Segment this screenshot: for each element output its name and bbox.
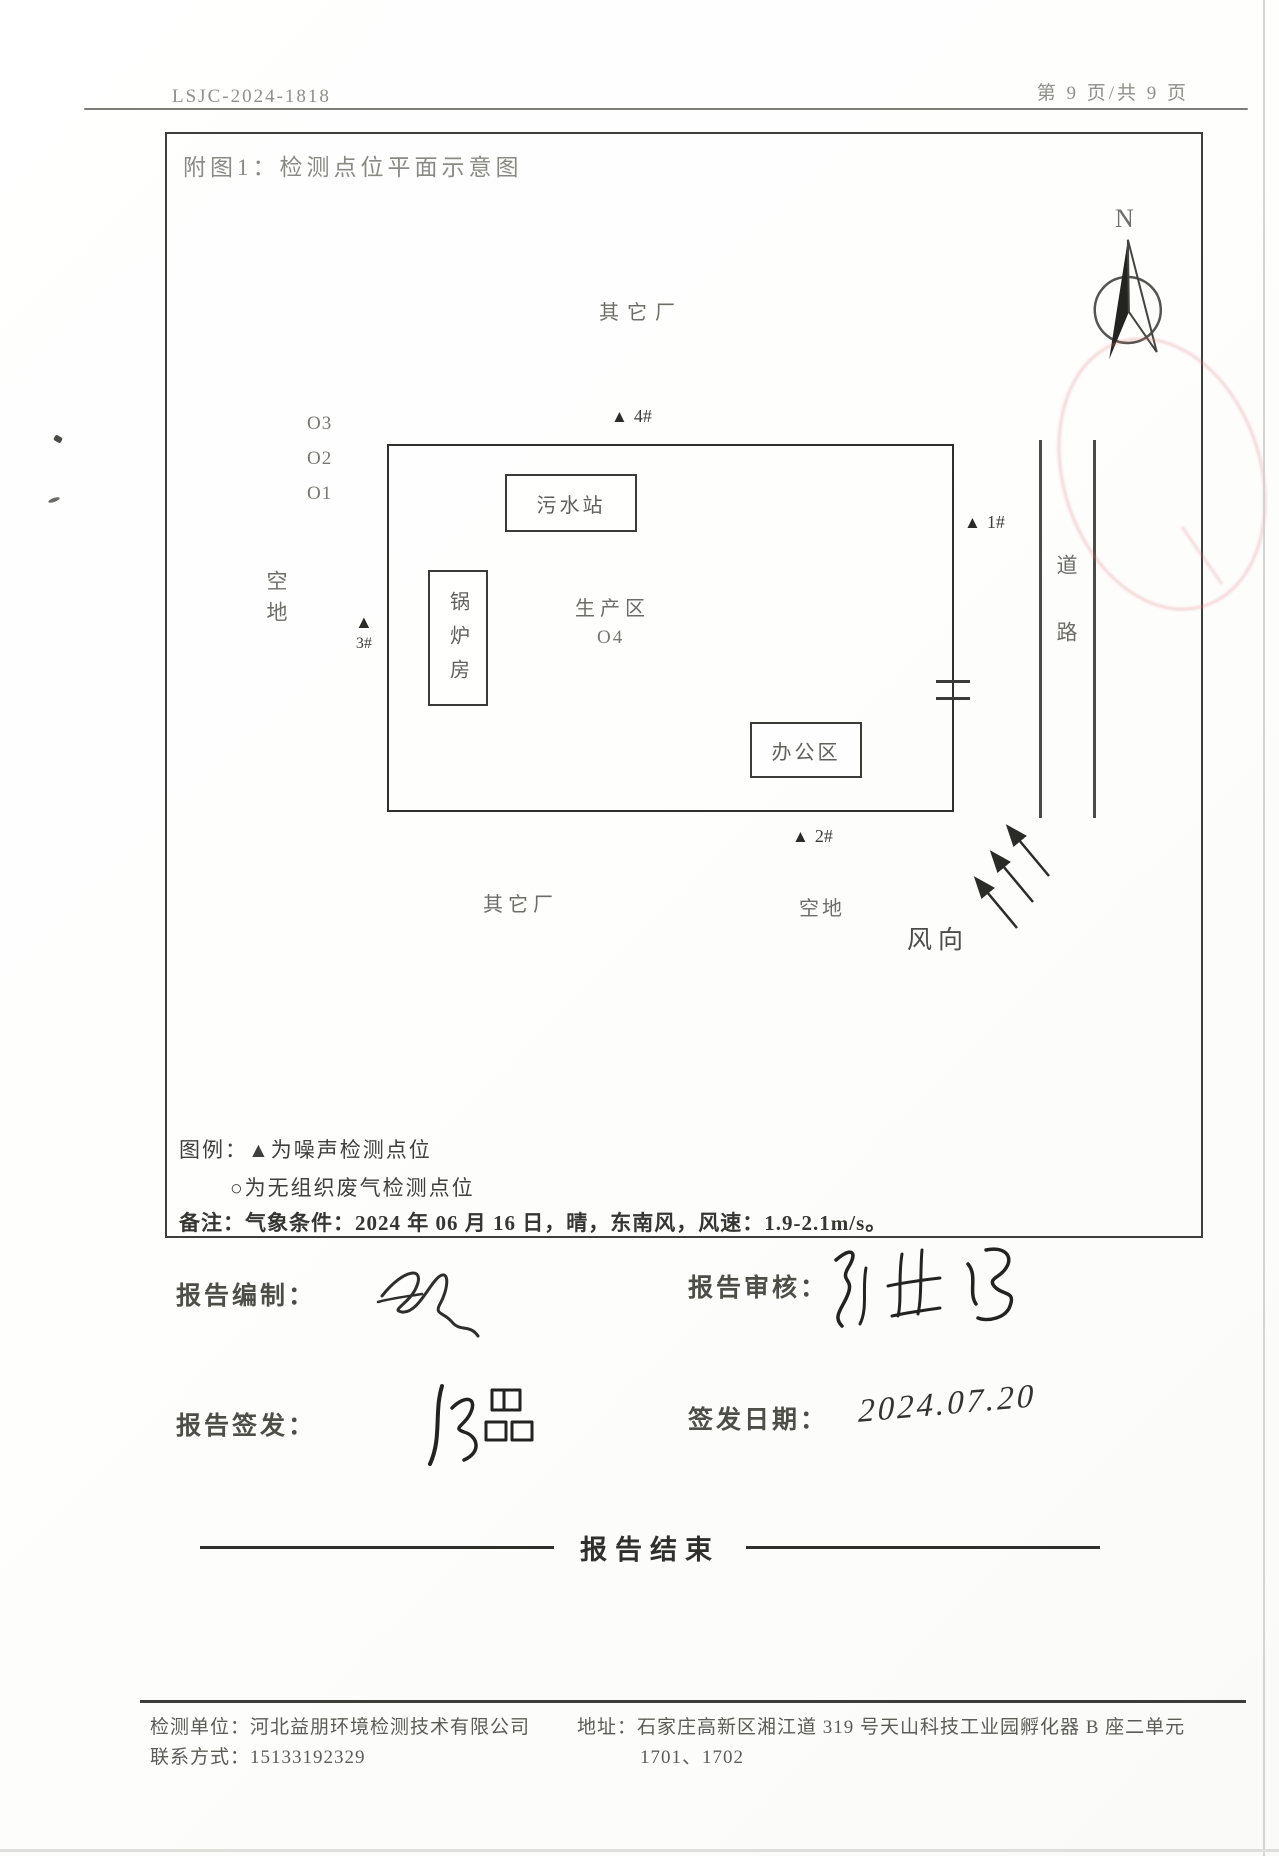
gas-point-list: O3 O2 O1 <box>307 406 332 511</box>
legend-noise-item: ▲为噪声检测点位 <box>248 1138 432 1162</box>
signature-prepared <box>352 1252 492 1352</box>
page-number: 第 9 页/共 9 页 <box>1037 78 1189 105</box>
footer-address-line2: 1701、1702 <box>640 1742 744 1769</box>
noise-point-3: ▲ 3# <box>355 612 373 653</box>
footer-address-line1: 地址：石家庄高新区湘江道 319 号天山科技工业园孵化器 B 座二单元 <box>577 1712 1185 1739</box>
noise-point-3-label: 3# <box>355 635 373 653</box>
office-area-box: 办公区 <box>750 722 862 778</box>
report-page: LSJC-2024-1818 第 9 页/共 9 页 附图1：检测点位平面示意图… <box>0 0 1279 1856</box>
legend-label: 图例： <box>179 1138 248 1162</box>
note-text: 气象条件：2024 年 06 月 16 日，晴，东南风，风速：1.9-2.1m/… <box>245 1211 887 1235</box>
scan-edge-bottom <box>0 1849 1279 1852</box>
compass-north-label: N <box>1115 204 1134 234</box>
gas-point-o2: O2 <box>307 441 332 476</box>
scan-speck <box>48 496 61 504</box>
figure-title: 附图1：检测点位平面示意图 <box>183 148 523 182</box>
legend-row-noise: 图例：▲为噪声检测点位 <box>179 1134 432 1164</box>
zone-other-factory-top: 其它厂 <box>599 296 683 325</box>
report-prepared-label: 报告编制： <box>176 1276 316 1312</box>
document-number: LSJC-2024-1818 <box>172 86 331 108</box>
noise-point-2: ▲2# <box>792 826 833 847</box>
scan-speck <box>53 434 63 443</box>
note-row: 备注：气象条件：2024 年 06 月 16 日，晴，东南风，风速：1.9-2.… <box>179 1207 887 1237</box>
office-area-label: 办公区 <box>772 736 841 765</box>
gas-point-o3: O3 <box>307 406 332 441</box>
boiler-room-box: 锅炉房 <box>428 570 488 706</box>
footer-contact: 联系方式：15133192329 <box>150 1742 366 1769</box>
gas-point-o4: O4 <box>597 627 624 649</box>
scan-edge-right <box>1263 0 1265 1856</box>
signature-reviewed <box>818 1238 1028 1338</box>
sewage-station-label: 污水站 <box>537 489 606 518</box>
zone-empty-lot-bottom: 空地 <box>799 892 845 921</box>
noise-marker-icon: ▲ <box>792 827 809 846</box>
noise-point-4: ▲4# <box>611 406 652 427</box>
zone-empty-lot-left: 空地 <box>261 570 291 632</box>
header-divider <box>84 108 1248 110</box>
gate-line-bottom <box>936 697 970 700</box>
note-label: 备注： <box>179 1211 245 1235</box>
noise-marker-icon: ▲ <box>355 612 373 633</box>
boiler-room-label: 锅炉房 <box>444 591 473 693</box>
issue-date-value: 2024.07.20 <box>858 1378 1036 1431</box>
report-issued-label: 报告签发： <box>176 1406 316 1442</box>
sewage-station-box: 污水站 <box>505 474 637 532</box>
legend-gas-item: ○为无组织废气检测点位 <box>230 1176 475 1200</box>
noise-point-4-label: 4# <box>634 406 652 426</box>
noise-marker-icon: ▲ <box>611 407 628 426</box>
issue-date-label: 签发日期： <box>688 1400 828 1436</box>
wind-direction-label: 风向 <box>907 920 969 956</box>
noise-point-1-label: 1# <box>987 512 1005 532</box>
road-line-west <box>1039 440 1042 818</box>
noise-point-2-label: 2# <box>815 826 833 846</box>
end-line-left <box>200 1546 554 1549</box>
report-end-text: 报告结束 <box>554 1528 746 1567</box>
gas-point-o1: O1 <box>307 476 332 511</box>
footer-org: 检测单位：河北益朋环境检测技术有限公司 <box>150 1712 530 1739</box>
end-line-right <box>746 1546 1100 1549</box>
legend-row-gas: ○为无组织废气检测点位 <box>230 1172 475 1202</box>
footer-divider <box>140 1700 1246 1703</box>
report-reviewed-label: 报告审核： <box>688 1268 828 1304</box>
noise-marker-icon: ▲ <box>964 513 981 532</box>
signature-issued <box>408 1368 548 1473</box>
gate-line-top <box>936 680 970 683</box>
report-end-divider: 报告结束 <box>200 1528 1100 1567</box>
figure-frame: 附图1：检测点位平面示意图 N 其它厂 空地 其它厂 空地 O3 O2 O1 ▲… <box>165 132 1203 1238</box>
production-area-label: 生产区 <box>575 592 650 621</box>
road-label: 道路 <box>1051 554 1081 688</box>
zone-other-factory-bottom: 其它厂 <box>483 888 558 917</box>
noise-point-1: ▲1# <box>964 512 1005 533</box>
